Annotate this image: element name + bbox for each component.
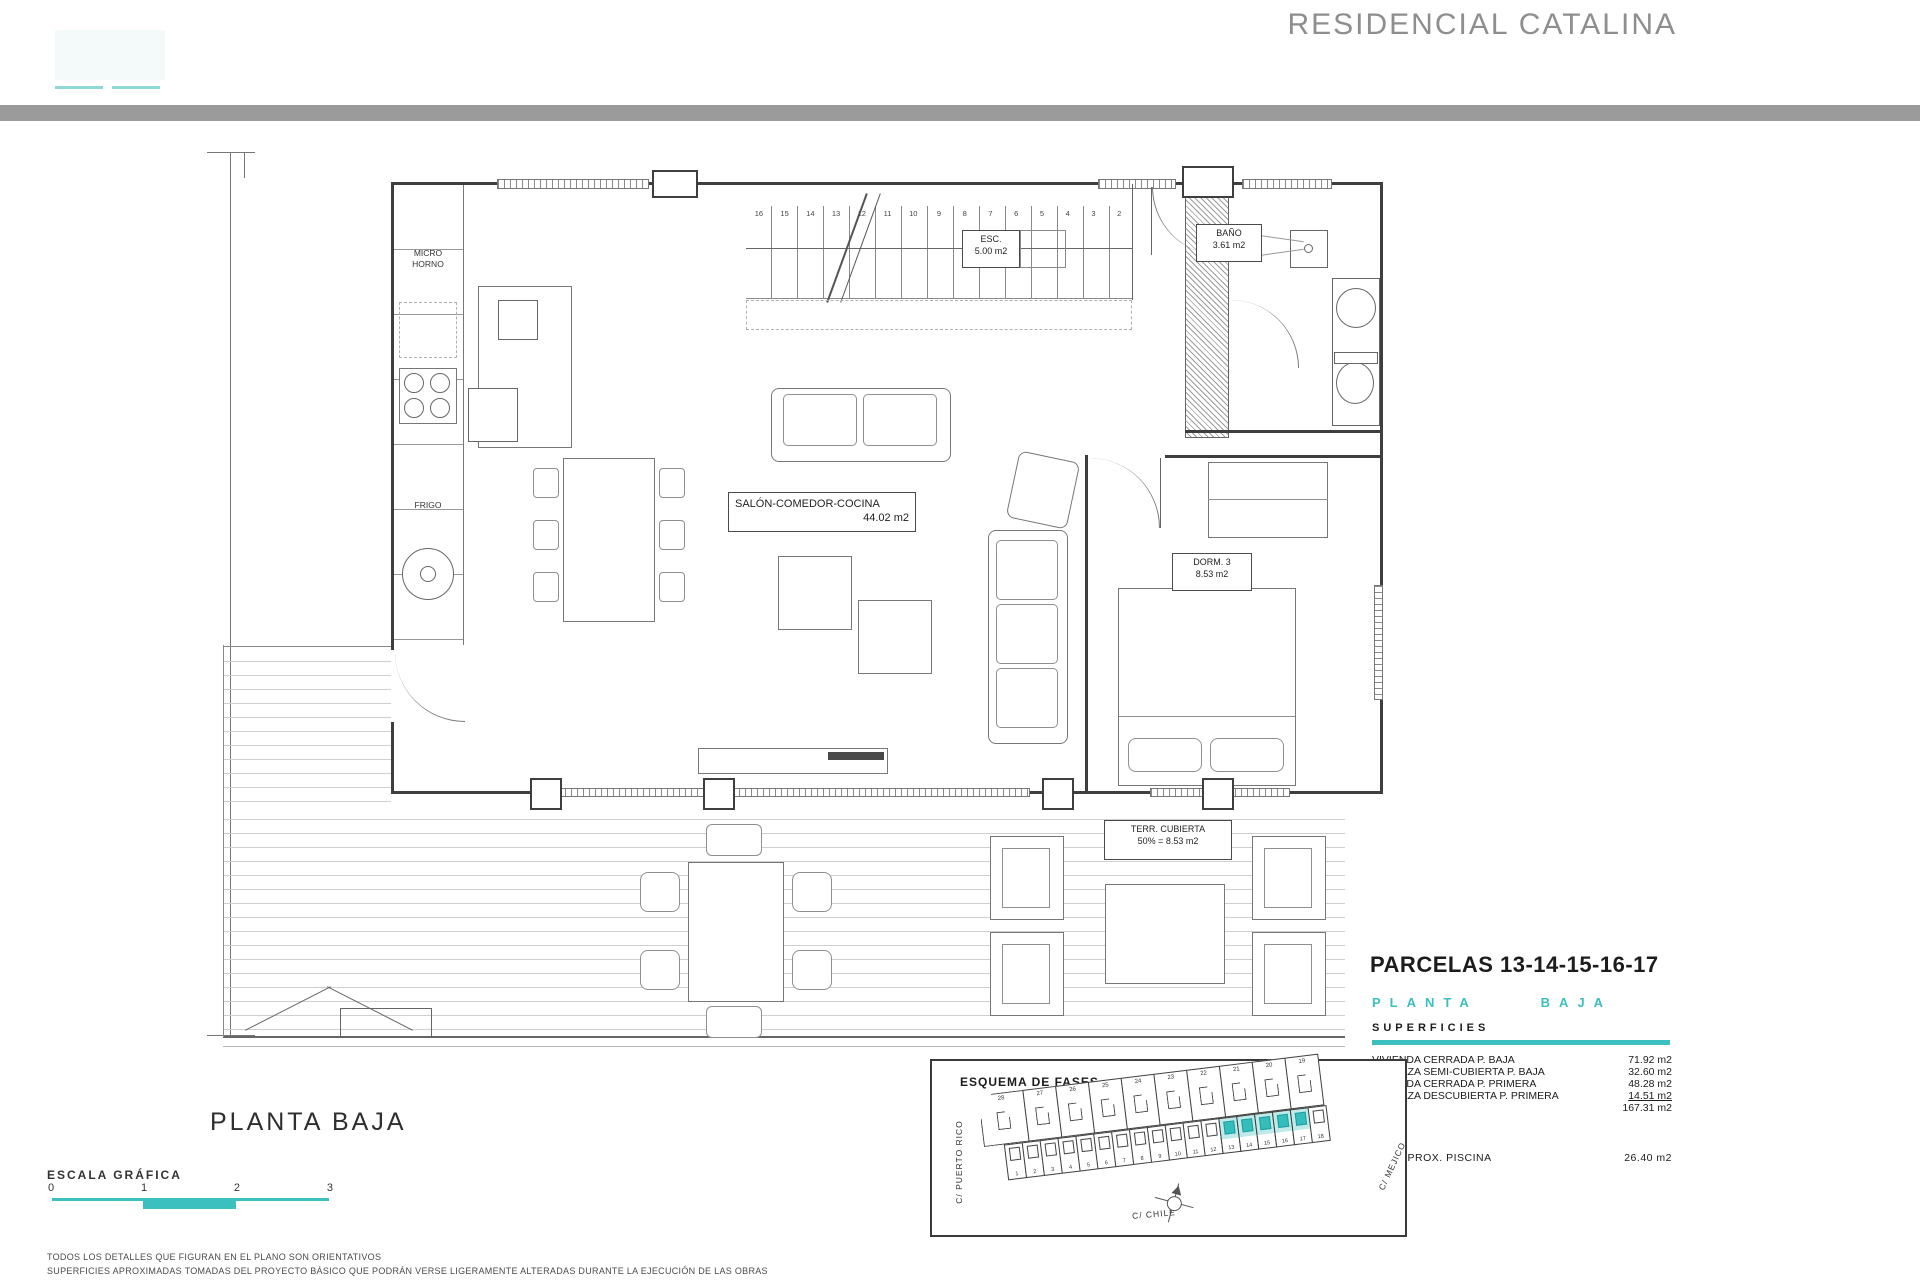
logo-dash-left [55,86,103,89]
stair-number: 4 [1055,208,1081,219]
plot-number: 8 [1133,1155,1151,1163]
plot-cell: 19 [1284,1054,1324,1110]
row-value: 167.31 m2 [1622,1102,1672,1114]
plot-number: 18 [1312,1133,1330,1141]
toilet-bowl [1336,362,1374,404]
plot-number: 23 [1155,1073,1187,1083]
sliding-glass-doors [540,788,1030,797]
house-footprint [1133,1094,1148,1113]
logo [55,30,165,80]
street-mejico: C/ MEJICO [1371,1128,1414,1205]
disclaimer-line-2: SUPERFICIES APROXIMADAS TOMADAS DEL PROY… [47,1266,768,1276]
pillar-top-b [1182,166,1234,198]
house-footprint [1294,1112,1307,1126]
stair-landing-box [1020,230,1066,268]
outdoor-chair-2 [640,950,680,990]
parcels-title: PARCELAS 13-14-15-16-17 [1370,952,1659,978]
disclaimer-line-1: TODOS LOS DETALLES QUE FIGURAN EN EL PLA… [47,1252,381,1262]
row-value: 32.60 m2 [1628,1066,1672,1078]
plot-number: 17 [1294,1135,1312,1143]
house-footprint [1276,1114,1289,1128]
house-footprint [1297,1074,1312,1093]
stair-number: 14 [797,208,823,219]
wall-left-lower [391,722,394,794]
plot-number: 22 [1187,1069,1219,1079]
door-arc-kitchen-exit [395,652,465,722]
plot-cell: 28 [978,1090,1030,1147]
dimension-tick-top [207,152,255,153]
pillar-terrace-2 [703,778,735,810]
house-footprint [1115,1134,1128,1148]
terrace-area-text: 50% = 8.53 m2 [1138,836,1199,846]
plot-number: 16 [1276,1137,1294,1145]
terrace-edge-2 [223,1046,1345,1047]
hob-burner-4 [430,398,450,418]
plot-number: 13 [1223,1144,1241,1152]
scale-bar [52,1198,329,1210]
house-footprint [1312,1109,1325,1123]
pillar-top-a [652,170,698,198]
stair-rail [746,248,1132,249]
compass-circle [1165,1194,1183,1212]
page-title: RESIDENCIAL CATALINA [1287,8,1677,42]
dining-chair-6 [659,572,685,602]
house-footprint [1205,1123,1218,1137]
plot-number: 11 [1187,1148,1205,1156]
bathroom-area-text: 3.61 m2 [1213,240,1246,250]
terrace-table-center [1105,884,1225,984]
wall-hall-stairs [1132,184,1133,300]
neighbour-structure [340,1008,432,1038]
stair-number: 2 [1106,208,1132,219]
side-yard-top [223,646,391,647]
outdoor-chair-1 [640,872,680,912]
table-row: VIVIENDA CERRADA P. BAJA71.92 m2 [1372,1054,1672,1066]
label-covered-terrace: TERR. CUBIERTA 50% = 8.53 m2 [1104,820,1232,860]
scale-tick: 1 [141,1182,147,1194]
terrace-label-text: TERR. CUBIERTA [1131,824,1205,834]
compass-rose [1150,1179,1199,1228]
bedroom-label-text: DORM. 3 [1193,557,1231,567]
door-arc-bath [1231,300,1299,368]
plot-number: 3 [1044,1166,1062,1174]
compass-needle [1171,1184,1183,1195]
dining-chair-1 [533,468,559,498]
pool-row: SUP. APROX. PISCINA 26.40 m2 [1372,1152,1672,1164]
row-value: 48.28 m2 [1628,1078,1672,1090]
house-footprint [996,1111,1011,1130]
pool-row-value: 26.40 m2 [1624,1152,1672,1164]
label-fridge: FRIGO [396,500,460,510]
label-bedroom: DORM. 3 8.53 m2 [1172,553,1252,591]
kitchen-sink-drain [420,566,436,582]
house-footprint [1098,1136,1111,1150]
plot-number: 15 [1258,1140,1276,1148]
stair-number: 10 [900,208,926,219]
floor-word-2: BAJA [1541,995,1612,1010]
house-footprint [1199,1086,1214,1105]
label-living-room: SALÓN-COMEDOR-COCINA 44.02 m2 [728,492,916,532]
wardrobe-divider [1208,499,1328,500]
stairs [746,206,1132,299]
outdoor-chair-4 [792,950,832,990]
wall-bath-bottom [1185,430,1383,433]
pillar-terrace-1 [530,778,562,810]
stair-number: 6 [1003,208,1029,219]
tv-screen [828,752,884,760]
plot-number: 27 [1024,1089,1056,1099]
house-footprint [1068,1102,1083,1121]
plot-number: 14 [1240,1142,1258,1150]
scale-bar-segment-3 [236,1198,329,1201]
house-footprint [1062,1140,1075,1154]
house-footprint [1151,1129,1164,1143]
plot-number: 12 [1205,1146,1223,1154]
stair-number: 7 [978,208,1004,219]
door-arc-dorm [1090,458,1160,528]
bedroom-area-text: 8.53 m2 [1196,569,1229,579]
plot-number: 19 [1286,1057,1318,1067]
dining-chair-3 [533,572,559,602]
scale-bar-segment-1 [52,1198,143,1201]
door-leaf-entry [1151,187,1152,255]
plot-boundary-left [223,645,224,1037]
house-footprint [1232,1082,1247,1101]
coffee-table-2 [858,600,932,674]
island-side-unit [468,388,518,442]
sofa-cushion-2 [863,394,937,446]
stair-number: 3 [1081,208,1107,219]
stair-number: 12 [849,208,875,219]
outdoor-chair-5 [706,824,762,856]
house-footprint [1264,1078,1279,1097]
stairs-label-text: ESC. [980,234,1001,244]
plot-number: 1 [1008,1170,1026,1178]
stair-number: 16 [746,208,772,219]
chaise-cushion-2 [996,604,1058,664]
label-bathroom: BAÑO 3.61 m2 [1196,224,1262,262]
plot-number: 21 [1220,1065,1252,1075]
living-room-area-text: 44.02 m2 [735,511,909,525]
window-top-kitchen [497,179,649,189]
house-footprint [1223,1120,1236,1134]
table-row: VIVIENDA CERRADA P. PRIMERA48.28 m2 [1372,1078,1672,1090]
plot-number: 9 [1151,1153,1169,1161]
plot-number: 24 [1122,1077,1154,1087]
table-row: TOTAL167.31 m2 [1372,1102,1672,1114]
wardrobe [1208,462,1328,538]
stair-number: 5 [1029,208,1055,219]
lounge-chair-a1-seat [1002,848,1050,908]
stair-number: 15 [772,208,798,219]
bed-sheet-line [1119,716,1295,717]
toilet-tank [1334,352,1378,364]
house-footprint [1008,1147,1021,1161]
header-bar [0,105,1920,121]
outdoor-chair-6 [706,1006,762,1038]
superficies-rows: VIVIENDA CERRADA P. BAJA71.92 m2TERRAZA … [1372,1054,1672,1114]
hob-burner-3 [404,398,424,418]
side-yard-decking [223,648,391,806]
floor-word-1: PLANTA [1372,995,1478,1010]
dimension-tick-top2 [244,152,245,178]
label-microwave-oven: MICRO HORNO [396,248,460,269]
logo-dash-right [112,86,160,89]
scale-tick: 2 [234,1182,240,1194]
house-footprint [1026,1145,1039,1159]
scale-tick: 0 [48,1182,54,1194]
floor-plan-title: PLANTA BAJA [210,1108,407,1137]
house-footprint [1241,1118,1254,1132]
upper-cabinet [399,302,457,358]
house-footprint [1166,1090,1181,1109]
superficies-rule [1372,1040,1670,1045]
plot-number: 20 [1253,1061,1285,1071]
wall-right [1380,182,1383,794]
house-footprint [1044,1142,1057,1156]
dining-chair-4 [659,468,685,498]
stair-number: 8 [952,208,978,219]
superficies-label: SUPERFICIES [1372,1022,1489,1034]
bath-sink [1336,288,1376,328]
chaise-cushion-3 [996,668,1058,728]
plot-number: 4 [1062,1164,1080,1172]
micro-label-line2: HORNO [412,259,444,269]
house-footprint [1101,1098,1116,1117]
stairs-area-text: 5.00 m2 [975,246,1008,256]
pillar-terrace-3 [1042,778,1074,810]
stair-number: 11 [875,208,901,219]
house-footprint [1169,1127,1182,1141]
pillow-1 [1128,738,1202,772]
sofa-cushion-1 [783,394,857,446]
table-row: TERRAZA SEMI-CUBIERTA P. BAJA32.60 m2 [1372,1066,1672,1078]
outdoor-chair-3 [792,872,832,912]
stair-projection [746,300,1132,330]
pillow-2 [1210,738,1284,772]
plan-sheet: RESIDENCIAL CATALINA 16151413121110987 [0,0,1920,1280]
island-sink [498,300,538,340]
scale-ticks: 0123 [48,1182,333,1194]
door-leaf-dorm [1160,458,1161,528]
living-room-label-text: SALÓN-COMEDOR-COCINA [735,497,909,511]
dining-chair-5 [659,520,685,550]
plot-number: 2 [1026,1168,1044,1176]
lounge-chair-b2-seat [1264,944,1312,1004]
outdoor-table [688,862,784,1002]
stair-number: 9 [926,208,952,219]
lounge-chair-b1-seat [1264,848,1312,908]
house-footprint [1258,1116,1271,1130]
table-row: TERRAZA DESCUBIERTA P. PRIMERA14.51 m2 [1372,1090,1672,1102]
dining-chair-2 [533,520,559,550]
hob-burner-2 [430,373,450,393]
house-footprint [1035,1106,1050,1125]
dorm-window-right [1374,585,1383,700]
plot-number: 25 [1089,1081,1121,1091]
stair-number: 13 [823,208,849,219]
graphic-scale-label: ESCALA GRÁFICA [47,1168,182,1182]
plot-number: 5 [1080,1161,1098,1169]
plot-number: 10 [1169,1150,1187,1158]
row-value: 71.92 m2 [1628,1054,1672,1066]
scale-tick: 3 [327,1182,333,1194]
chaise-cushion-1 [996,540,1058,600]
house-footprint [1187,1125,1200,1139]
wall-dorm-left [1085,455,1088,794]
row-value: 14.51 m2 [1628,1090,1672,1102]
house-footprint [1133,1131,1146,1145]
plot-number: 6 [1098,1159,1116,1167]
label-stairs: ESC. 5.00 m2 [962,230,1020,268]
shower-drain [1304,244,1313,253]
plot-number: 26 [1056,1085,1088,1095]
floor-label-teal: PLANTA BAJA [1372,995,1612,1010]
coffee-table-1 [778,556,852,630]
scale-bar-segment-2 [143,1198,236,1209]
plots-band: 28272625242322212019 1234567891011121314… [979,1053,1331,1182]
house-footprint [1080,1138,1093,1152]
micro-label-line1: MICRO [414,248,442,258]
hob-burner-1 [404,373,424,393]
pillar-terrace-4 [1202,778,1234,810]
window-top-bath [1242,179,1332,189]
armchair [1006,450,1081,529]
bathroom-label-text: BAÑO [1216,228,1242,238]
fridge-label-text: FRIGO [415,500,442,510]
plot-number: 7 [1115,1157,1133,1165]
stair-numbers: 1615141312111098765432 [746,208,1132,219]
phases-diagram: ESQUEMA DE FASES C/ ARGENTINA C/ PUERTO … [930,1059,1407,1237]
street-puerto-rico: C/ PUERTO RICO [954,1107,964,1217]
lounge-chair-a2-seat [1002,944,1050,1004]
wall-dorm-top [1165,455,1383,458]
dining-table [563,458,655,622]
plot-number: 28 [979,1093,1023,1104]
plot-cell: 18 [1308,1105,1331,1143]
